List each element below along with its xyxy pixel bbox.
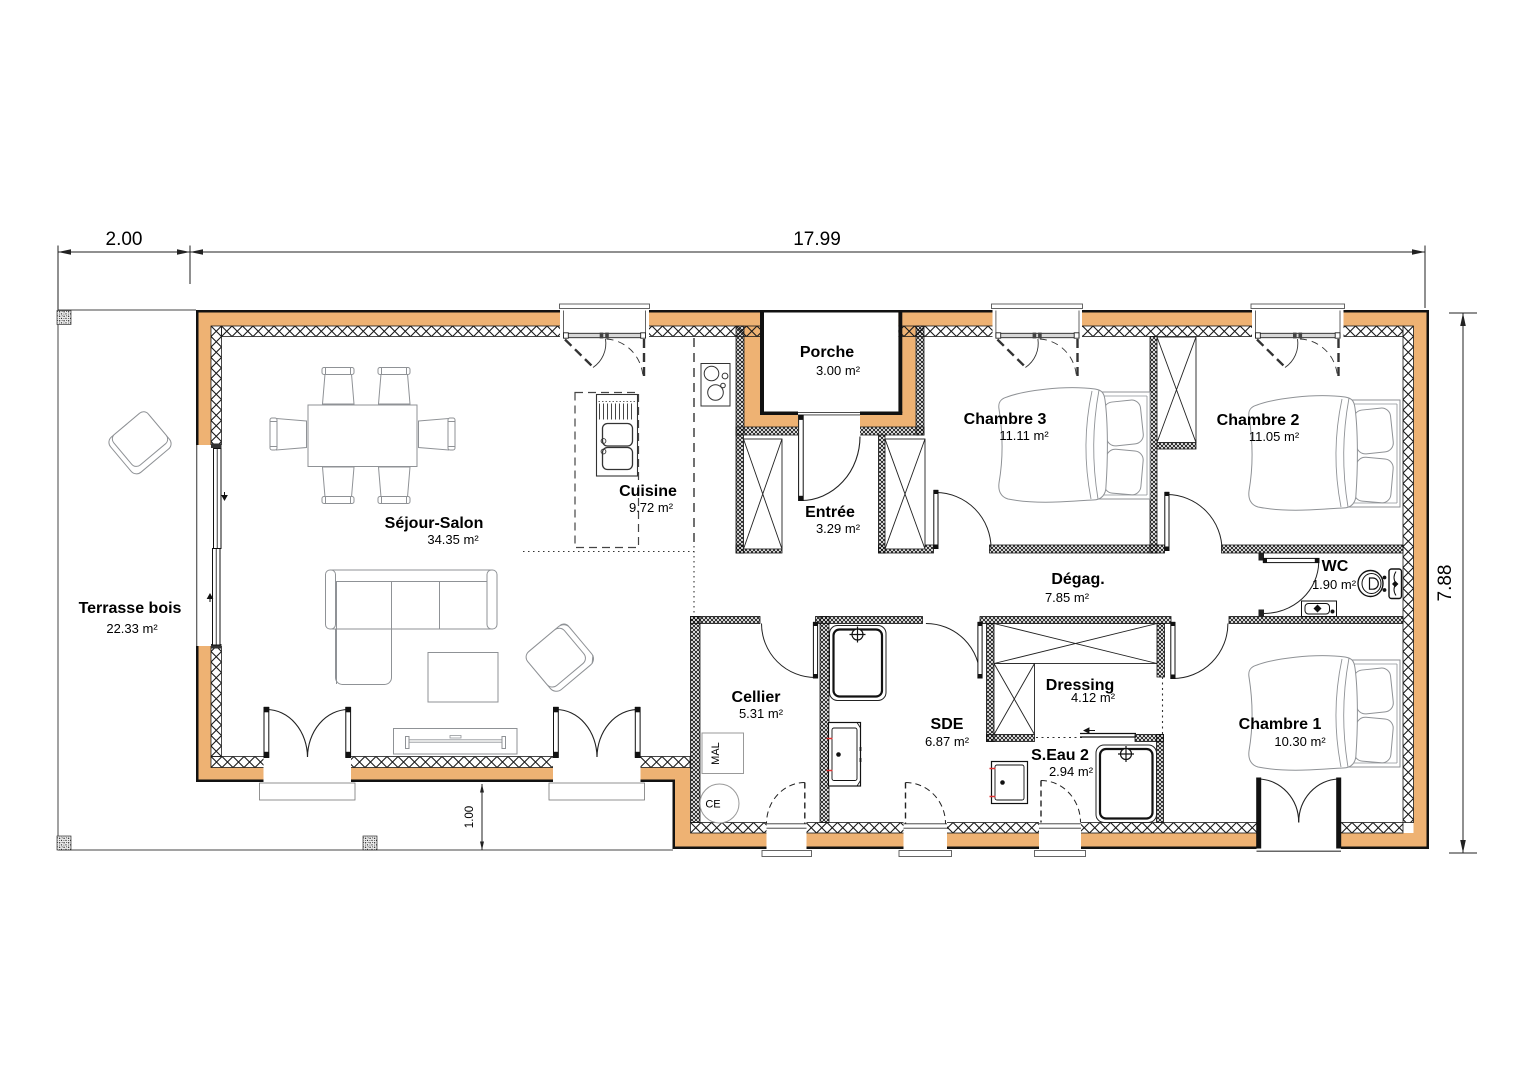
svg-text:7.85 m²: 7.85 m² bbox=[1045, 590, 1090, 605]
svg-text:MAL: MAL bbox=[710, 742, 722, 765]
svg-text:Porche: Porche bbox=[800, 344, 854, 361]
svg-text:3.00 m²: 3.00 m² bbox=[816, 363, 861, 378]
svg-text:3.29 m²: 3.29 m² bbox=[816, 521, 861, 536]
svg-text:Dégag.: Dégag. bbox=[1051, 571, 1104, 588]
svg-text:2.00: 2.00 bbox=[106, 229, 143, 250]
svg-text:CE: CE bbox=[705, 799, 720, 811]
svg-text:6.87 m²: 6.87 m² bbox=[925, 734, 970, 749]
svg-text:Cellier: Cellier bbox=[732, 689, 781, 706]
svg-text:11.05 m²: 11.05 m² bbox=[1249, 429, 1300, 444]
svg-text:7.88: 7.88 bbox=[1435, 565, 1456, 602]
svg-text:Chambre 3: Chambre 3 bbox=[964, 411, 1047, 428]
svg-text:Terrasse bois: Terrasse bois bbox=[79, 600, 182, 617]
svg-text:Chambre 2: Chambre 2 bbox=[1217, 412, 1300, 429]
svg-text:1.90 m²: 1.90 m² bbox=[1312, 577, 1357, 592]
svg-text:9.72 m²: 9.72 m² bbox=[629, 500, 674, 515]
svg-text:22.33 m²: 22.33 m² bbox=[106, 621, 158, 636]
svg-text:4.12 m²: 4.12 m² bbox=[1071, 690, 1116, 705]
svg-text:11.11 m²: 11.11 m² bbox=[999, 428, 1049, 443]
svg-text:10.30 m²: 10.30 m² bbox=[1274, 734, 1326, 749]
svg-text:S.Eau 2: S.Eau 2 bbox=[1031, 747, 1089, 764]
svg-text:Séjour-Salon: Séjour-Salon bbox=[385, 515, 484, 532]
svg-text:SDE: SDE bbox=[931, 716, 964, 733]
svg-text:2.94 m²: 2.94 m² bbox=[1049, 764, 1094, 779]
svg-text:Entrée: Entrée bbox=[805, 504, 855, 521]
svg-text:5.31 m²: 5.31 m² bbox=[739, 706, 784, 721]
svg-text:17.99: 17.99 bbox=[793, 229, 841, 250]
svg-text:WC: WC bbox=[1322, 558, 1349, 575]
svg-text:Chambre 1: Chambre 1 bbox=[1239, 716, 1322, 733]
svg-text:1.00: 1.00 bbox=[464, 806, 476, 828]
svg-text:Cuisine: Cuisine bbox=[619, 483, 677, 500]
svg-text:34.35 m²: 34.35 m² bbox=[427, 532, 479, 547]
